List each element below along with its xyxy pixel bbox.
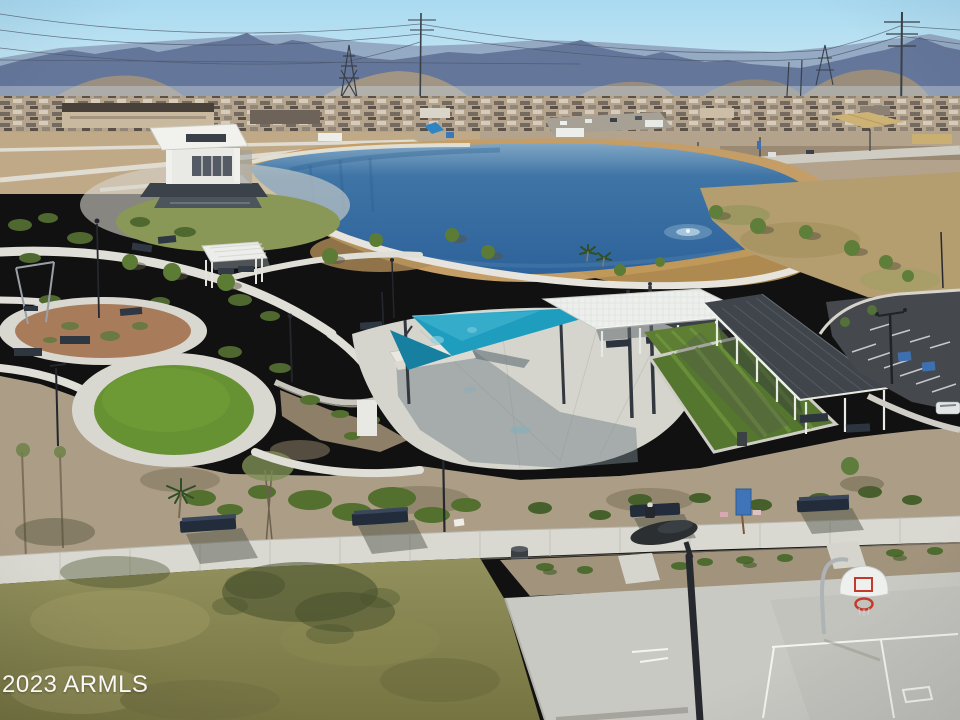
photo-canvas: [0, 0, 960, 720]
aerial-park-photo: 2023 ARMLS: [0, 0, 960, 720]
watermark: 2023 ARMLS: [2, 671, 148, 699]
photo-vignette: [0, 0, 960, 720]
